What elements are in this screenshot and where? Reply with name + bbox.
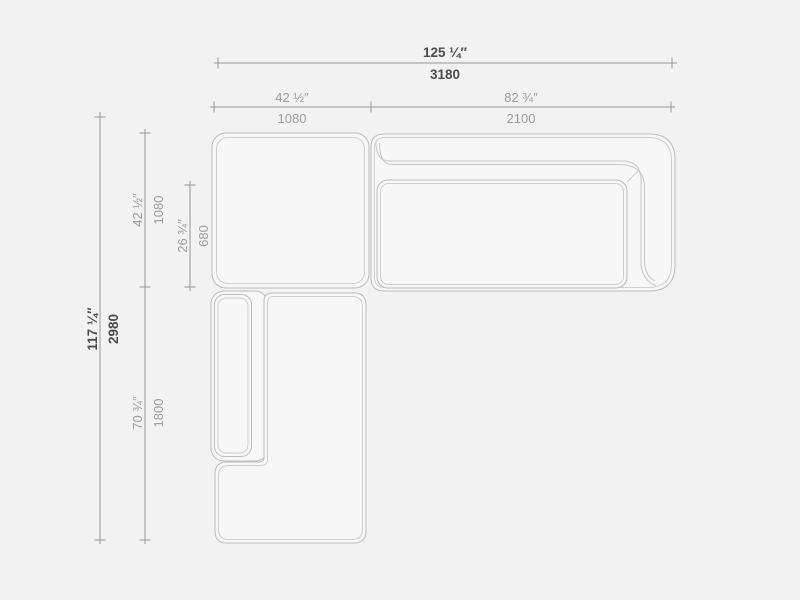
ottoman-module-outline [212,133,369,288]
dim-right-width-mm: 2100 [507,111,536,126]
dim-label-inches: 125 ¼″ [423,45,468,60]
sofa-seat-cushion-outline [377,180,627,288]
dimension-drawing-canvas: 125 ¼″ 3180 42 ½″ 1080 82 ¾″ 2100 117 ¼″… [0,0,800,600]
dim-top-depth-mm: 1080 [151,196,166,225]
dim-total-width: 125 ¼″ 3180 [214,45,677,82]
dim-label-mm: 3180 [430,67,460,82]
dim-module-widths: 42 ½″ 1080 82 ¾″ 2100 [210,90,675,126]
chaise-armrest-cushion-outline [215,295,252,457]
dim-label-inches: 117 ¼″ [85,307,100,351]
dim-chaise-length-inches: 70 ¾″ [130,396,145,430]
sofa-dimension-drawing: 125 ¼″ 3180 42 ½″ 1080 82 ¾″ 2100 117 ¼″… [0,0,800,600]
dim-top-depth-inches: 42 ½″ [130,193,145,227]
dim-total-depth: 117 ¼″ 2980 [85,112,121,544]
dim-seat-depth-mm: 680 [196,225,211,247]
dim-right-width-inches: 82 ¾″ [504,90,538,105]
dim-left-width-mm: 1080 [278,111,307,126]
dim-seat-depth: 26 ¾″ 680 [175,181,211,291]
dim-chaise-length-mm: 1800 [151,399,166,428]
dim-module-depths: 42 ½″ 1080 70 ¾″ 1800 [130,129,166,544]
dim-label-mm: 2980 [106,314,121,344]
sofa-plan [211,133,675,543]
dim-seat-depth-inches: 26 ¾″ [175,219,190,253]
dim-left-width-inches: 42 ½″ [275,90,309,105]
